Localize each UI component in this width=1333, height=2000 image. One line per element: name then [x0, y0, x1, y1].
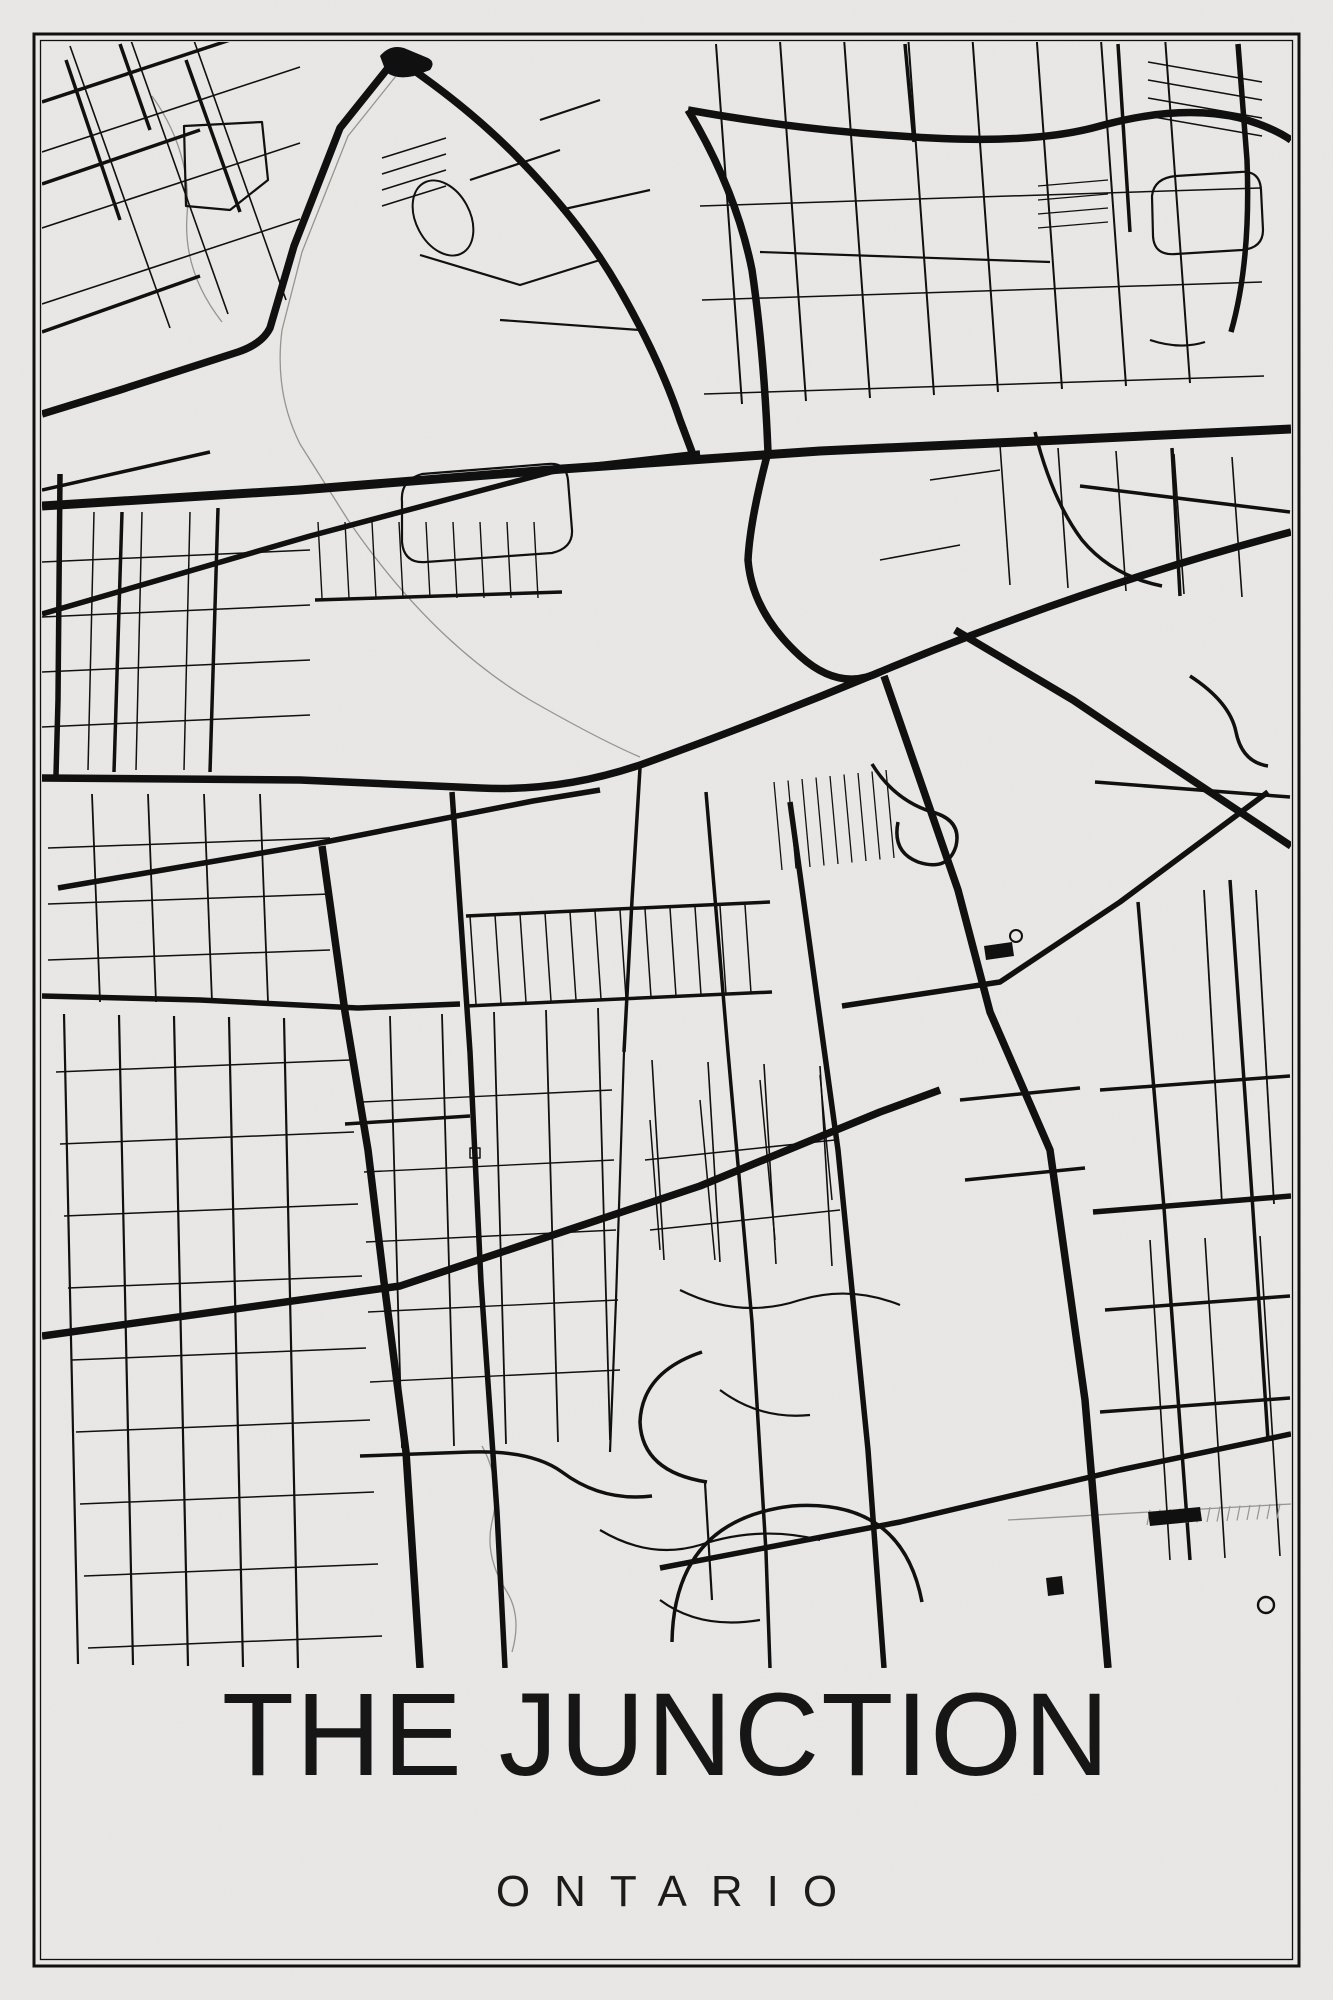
poster-title: THE JUNCTION [0, 1676, 1333, 1794]
poster-subtitle: ONTARIO [0, 1870, 1333, 1914]
map-poster: THE JUNCTION ONTARIO [0, 0, 1333, 2000]
title-block: THE JUNCTION ONTARIO [0, 1676, 1333, 1914]
